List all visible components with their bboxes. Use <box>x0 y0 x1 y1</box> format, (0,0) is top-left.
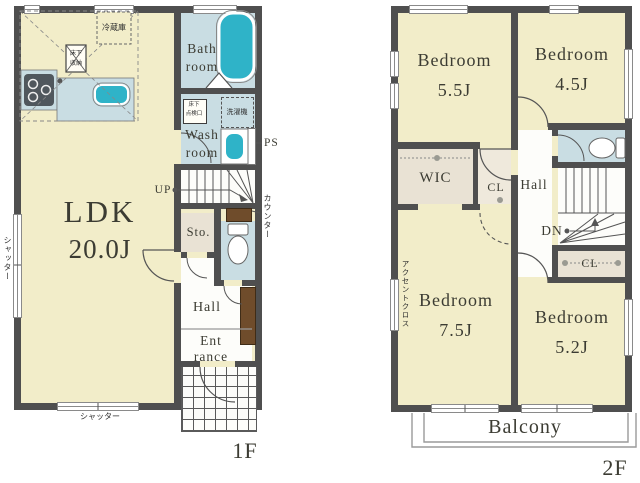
wall-segment <box>214 209 221 286</box>
room-label-cl-lower: CL <box>572 256 608 272</box>
window <box>95 6 133 13</box>
wall-segment <box>462 204 480 210</box>
fridge-label: 冷蔵庫 <box>97 22 131 33</box>
room-label-entrance: Ent rance <box>185 333 237 364</box>
window <box>625 50 632 118</box>
window <box>522 405 592 412</box>
wall-segment <box>473 149 478 204</box>
room-label-hall2: Hall <box>514 176 554 194</box>
room-label-cl-upper: CL <box>482 180 510 196</box>
room-label-bath: Bath room <box>180 40 224 75</box>
floor-storage-label: 床下 収納 <box>66 49 86 68</box>
pipe-space <box>248 129 255 164</box>
room-label-bedroom55: Bedroom 5.5J <box>398 46 511 105</box>
window <box>25 6 39 13</box>
wall-segment <box>398 204 418 210</box>
bath-line1: Bath <box>180 40 224 58</box>
window <box>58 403 138 410</box>
wash-line1: Wash <box>180 126 224 144</box>
wall-segment <box>552 130 558 136</box>
stairs2-floor <box>558 168 625 245</box>
bedroom45-size: 4.5J <box>518 70 626 100</box>
wall-segment <box>221 280 224 286</box>
window <box>391 84 398 108</box>
window <box>391 52 398 76</box>
dn-label: DN <box>538 222 566 240</box>
room-label-hall1: Hall <box>183 299 231 317</box>
room-label-bedroom75: Bedroom 7.5J <box>400 286 512 345</box>
window <box>391 280 398 330</box>
wall-segment <box>398 142 480 149</box>
room-label-wash: Wash room <box>180 126 224 161</box>
wash-line2: room <box>180 144 224 162</box>
window <box>550 6 578 13</box>
bedroom52-name: Bedroom <box>518 303 626 333</box>
bedroom55-size: 5.5J <box>398 76 511 106</box>
window <box>432 405 498 412</box>
room-label-ldk: LDK 20.0J <box>30 192 170 267</box>
inspect-line1: 床下 <box>183 101 205 110</box>
wall-segment <box>174 164 181 252</box>
hall1-corridor <box>181 258 214 288</box>
wall-segment <box>242 280 255 286</box>
wall-segment <box>548 123 625 130</box>
floor1-label: 1F <box>228 437 262 466</box>
wall-segment <box>511 13 518 150</box>
wall-segment <box>181 252 187 258</box>
shutter-bottom-label: シャッター <box>70 411 130 422</box>
wall-segment <box>552 245 625 251</box>
window <box>194 6 236 13</box>
wall-segment <box>235 361 255 367</box>
toilet1-floor <box>221 221 255 280</box>
hall2-floor <box>518 130 552 277</box>
bedroom75-name: Bedroom <box>400 286 512 316</box>
ldk-name: LDK <box>30 192 170 232</box>
ps-label: PS <box>264 136 286 151</box>
entrance-porch-tiles <box>181 367 257 432</box>
balcony-label: Balcony <box>455 414 595 440</box>
wall-segment <box>181 164 255 170</box>
counter-label: カウンター <box>262 194 273 239</box>
room-label-storage: Sto. <box>183 224 214 240</box>
bedroom45-name: Bedroom <box>518 40 626 70</box>
accent-cloth-label: アクセントクロス <box>400 260 411 328</box>
bath-line2: room <box>180 58 224 76</box>
inspection-hatch-label: 床下 点検口 <box>183 101 205 119</box>
wall-segment <box>207 252 214 258</box>
floorstor-line2: 収納 <box>66 59 86 69</box>
floorstor-line1: 床下 <box>66 49 86 59</box>
shoe-cabinet <box>241 288 255 344</box>
bedroom55-name: Bedroom <box>398 46 511 76</box>
room-label-bedroom45: Bedroom 4.5J <box>518 40 626 99</box>
floor-plan-image: LDK 20.0J Bath room Wash room 洗濯機 床下 点検口… <box>0 0 640 483</box>
window <box>625 300 632 355</box>
entrance-line1: Ent <box>185 333 237 349</box>
toilet2-floor <box>558 130 625 162</box>
wall-segment <box>181 88 255 94</box>
window <box>410 6 467 13</box>
inspect-line2: 点検口 <box>183 110 205 119</box>
wall-segment <box>174 283 181 403</box>
shutter-left-label: シャッター <box>2 236 13 281</box>
floor2-label: 2F <box>596 454 634 483</box>
wall-segment <box>548 277 625 283</box>
window <box>14 215 21 317</box>
bedroom52-size: 5.2J <box>518 333 626 363</box>
wall-segment <box>511 210 518 405</box>
wall-segment <box>552 251 558 277</box>
room-label-wic: WIC <box>403 169 468 189</box>
wall-segment <box>552 162 625 168</box>
entrance-line2: rance <box>185 349 237 365</box>
room-label-bedroom52: Bedroom 5.2J <box>518 303 626 362</box>
stairs1-floor <box>181 170 255 203</box>
closet-upper-floor <box>478 149 511 204</box>
washer-label: 洗濯機 <box>222 107 252 117</box>
counter-top <box>227 209 251 221</box>
bedroom75-size: 7.5J <box>400 316 512 346</box>
ldk-size: 20.0J <box>30 232 170 267</box>
up-label: UP <box>152 183 174 198</box>
